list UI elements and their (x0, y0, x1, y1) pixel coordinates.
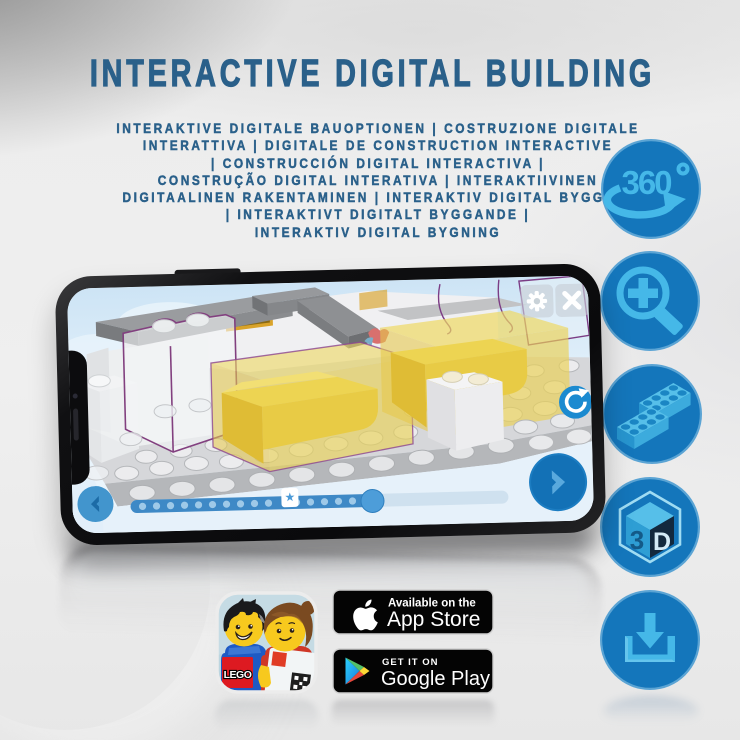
svg-text:3: 3 (630, 525, 644, 555)
svg-text:Google Play: Google Play (381, 668, 490, 690)
svg-text:D: D (653, 528, 671, 556)
svg-text:LEGO: LEGO (224, 669, 252, 681)
svg-text:App Store: App Store (387, 608, 480, 631)
svg-text:GET IT ON: GET IT ON (382, 657, 439, 668)
svg-text:360: 360 (621, 164, 671, 201)
